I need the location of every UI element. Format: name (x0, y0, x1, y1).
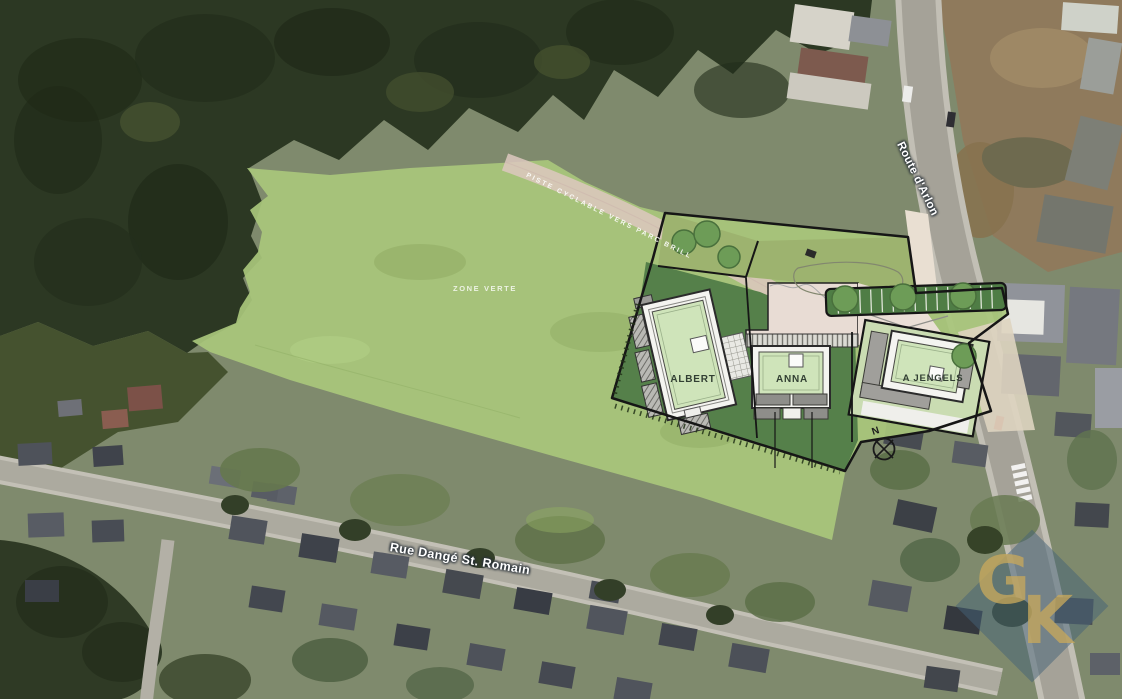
anna-skylight (789, 354, 803, 367)
aerial-site-plan-map: ZONE VERTE PISTE CYCLABLE VERS PARC BRIL… (0, 0, 1122, 699)
building-anna-label: ANNA (759, 374, 825, 385)
watermark-letter-k: K (1022, 588, 1073, 654)
satellite-basemap (0, 0, 1122, 699)
zone-verte-label: ZONE VERTE (430, 284, 540, 293)
albert-skylight (690, 335, 709, 352)
building-albert-label: ALBERT (660, 374, 726, 385)
building-jengels-label: A JENGELS (894, 373, 972, 384)
